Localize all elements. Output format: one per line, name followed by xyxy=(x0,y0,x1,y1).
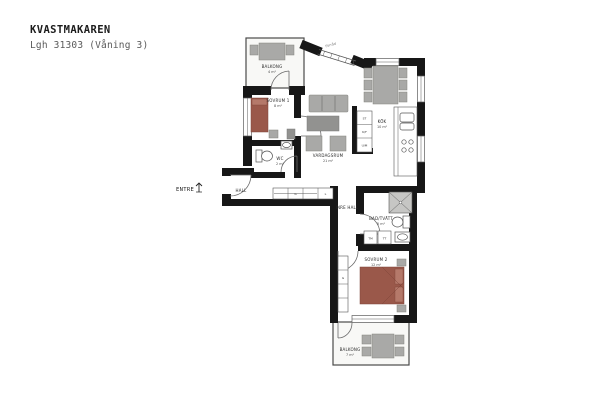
dryer-label: TT xyxy=(382,237,387,241)
room-label: INRE HALL xyxy=(336,205,359,210)
kitchen: ST K/F U/M KÖK 10 m² xyxy=(357,107,417,176)
inner-hall: INRE HALL xyxy=(336,205,359,210)
sink-icon xyxy=(400,123,414,130)
hob-icon xyxy=(402,140,406,144)
pillow-icon xyxy=(395,269,403,284)
balcony-table-icon xyxy=(372,334,394,358)
page-title: KVASTMAKAREN xyxy=(30,24,148,36)
balcony-top: BALKONG 4 m² xyxy=(246,38,304,88)
dining-area xyxy=(364,66,407,104)
sink-icon xyxy=(400,113,414,122)
balcony-chair-icon xyxy=(395,335,404,344)
toilet-icon xyxy=(392,217,403,227)
oven-micro-label: U/M xyxy=(362,144,368,148)
sink-basin-icon xyxy=(283,142,291,147)
hob-icon xyxy=(402,148,406,152)
room-area: 8 m² xyxy=(274,104,283,108)
armchair-icon xyxy=(330,136,346,151)
room-area: 21 m² xyxy=(323,159,334,163)
nightstand-icon xyxy=(397,305,406,312)
fridge-freezer-label: K/F xyxy=(362,130,367,134)
coffee-table-icon xyxy=(307,116,339,131)
toilet-icon xyxy=(262,151,273,161)
bedroom-2: G SOVRUM 2 12 m² xyxy=(338,256,406,312)
toilet-tank-icon xyxy=(403,216,410,228)
dresser-icon xyxy=(287,129,295,139)
entrance-label: ENTRE xyxy=(176,187,194,193)
bathroom: TM TT BAD/TVÄTT 5 m² xyxy=(364,192,412,244)
room-label: HALL xyxy=(235,188,247,193)
nightstand-icon xyxy=(397,259,406,266)
sofa-icon xyxy=(309,95,348,112)
room-label: SOVRUM 1 xyxy=(267,98,290,103)
hob-icon xyxy=(409,148,413,152)
room-label: BALKONG xyxy=(262,64,283,69)
balcony-bottom: BALKONG 7 m² xyxy=(333,322,409,365)
balcony-chair-icon xyxy=(362,335,371,344)
floor-plan: BALKONG 4 m² BALKONG 7 m² xyxy=(0,0,600,400)
balcony-chair-icon xyxy=(250,45,258,55)
cabinet-label: ST xyxy=(363,117,367,121)
pillow-icon xyxy=(395,287,403,302)
sink-basin-icon xyxy=(398,234,408,240)
dining-chair-icon xyxy=(399,80,407,90)
armchair-icon xyxy=(306,136,322,151)
dining-table-icon xyxy=(373,66,398,104)
dining-chair-icon xyxy=(364,68,372,78)
drain-icon xyxy=(399,201,402,204)
room-label: KÖK xyxy=(378,119,387,124)
room-area: 5 m² xyxy=(377,222,386,226)
bedroom-1: SOVRUM 1 8 m² xyxy=(251,98,295,139)
dining-chair-icon xyxy=(364,80,372,90)
title-block: KVASTMAKAREN Lgh 31303 (Våning 3) xyxy=(30,24,148,51)
washing-machine-label: TM xyxy=(367,237,373,241)
balcony-table-icon xyxy=(259,43,285,60)
room-label: VARDAGSRUM xyxy=(313,153,344,158)
nightstand-icon xyxy=(269,130,278,138)
balcony-chair-icon xyxy=(362,347,371,356)
forrad-label: Förråd xyxy=(325,41,337,49)
room-area: 12 m² xyxy=(371,263,382,267)
living-room: VARDAGSRUM 21 m² xyxy=(306,95,348,163)
room-label: BAD/TVÄTT xyxy=(369,216,393,221)
hob-icon xyxy=(409,140,413,144)
room-label: BALKONG xyxy=(340,347,361,352)
room-area: 10 m² xyxy=(377,125,388,129)
glazed-screen xyxy=(318,50,357,66)
room-area: 2 m² xyxy=(276,162,285,166)
hall: G L HALL ENTRE xyxy=(176,183,333,199)
floor-plan-page: KVASTMAKAREN Lgh 31303 (Våning 3) BALKON… xyxy=(0,0,600,400)
toilet-tank-icon xyxy=(256,150,262,162)
pillow-icon xyxy=(252,99,267,105)
room-label: WC xyxy=(276,156,283,161)
dining-chair-icon xyxy=(399,68,407,78)
room-area: 7 m² xyxy=(346,353,355,357)
dining-chair-icon xyxy=(399,92,407,102)
balcony-chair-icon xyxy=(395,347,404,356)
balcony-chair-icon xyxy=(286,45,294,55)
room-area: 4 m² xyxy=(268,70,277,74)
room-label: SOVRUM 2 xyxy=(365,257,388,262)
page-subtitle: Lgh 31303 (Våning 3) xyxy=(30,40,148,51)
dining-chair-icon xyxy=(364,92,372,102)
entrance-arrow-icon xyxy=(196,183,202,192)
